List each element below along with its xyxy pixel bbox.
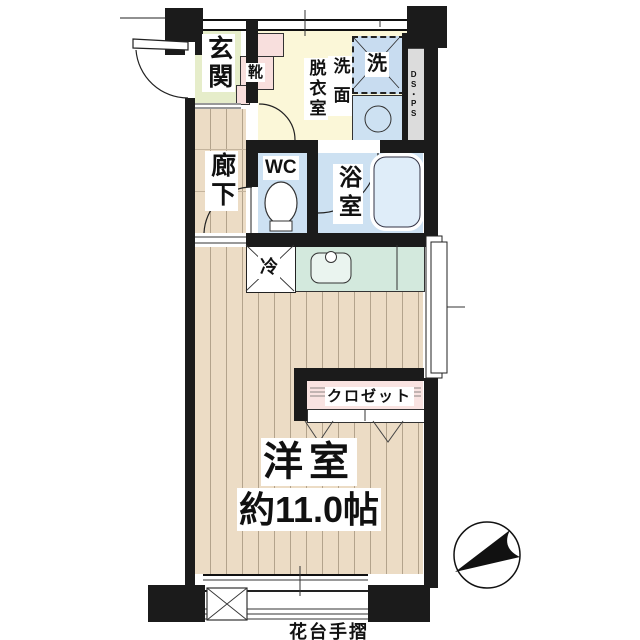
wall-entrance-divider	[246, 20, 258, 103]
kitchen-counter	[294, 245, 425, 292]
window-right	[426, 236, 447, 378]
window-top	[203, 19, 408, 31]
shoe-cabinet-label: 靴	[246, 63, 265, 82]
wall-wc-bath-divider	[307, 140, 318, 247]
wall-corner-bottom-left	[148, 585, 205, 622]
washroom-label-left: 脱衣室	[304, 58, 328, 120]
corridor-label: 廊下	[205, 151, 238, 211]
window-bottom	[203, 574, 368, 592]
western-room-size: 約11.0帖	[237, 488, 381, 531]
wall-corner-bottom-right	[368, 585, 430, 622]
western-room-label: 洋室	[261, 438, 357, 486]
entrance-door-arc	[136, 50, 188, 98]
western-room-labels: 洋室 約11.0帖	[195, 438, 423, 531]
wall-pipe-space-left	[402, 33, 408, 140]
shoe-cabinet-upper	[254, 33, 284, 57]
wc-door-opening	[246, 187, 258, 233]
balcony-label: 花台手摺	[287, 621, 371, 640]
entrance-door-opening	[185, 42, 195, 98]
wall-closet-top	[294, 368, 424, 381]
compass	[454, 522, 520, 588]
wall-corner-top-left	[165, 8, 203, 55]
wall-corner-top-right	[407, 6, 447, 48]
washroom-label-right: 洗面	[328, 56, 352, 116]
wall-right-lower	[424, 378, 438, 588]
wash-basin-counter	[352, 95, 409, 142]
floor-plan: 玄関 靴 洗面 脱衣室 洗 DS・PS 廊下 WC 浴室 冷 クロゼット 洋室 …	[0, 0, 640, 640]
corridor-threshold	[195, 233, 246, 247]
entrance-label: 玄関	[202, 34, 235, 92]
washing-machine-label: 洗	[365, 52, 389, 77]
closet-label: クロゼット	[325, 387, 414, 406]
closet-doors	[307, 409, 425, 423]
wall-closet-left	[294, 368, 307, 421]
refrigerator-label: 冷	[258, 256, 280, 279]
wall-bath-south	[246, 233, 438, 247]
bathroom-label: 浴室	[333, 164, 363, 224]
entrance-step	[195, 103, 241, 109]
bath-door-opening	[318, 140, 380, 153]
pipe-space-label: DS・PS	[409, 70, 418, 119]
balcony-railing	[205, 591, 368, 619]
north-arrow	[455, 530, 520, 572]
balcony-equipment-box	[207, 588, 247, 620]
wall-left	[185, 27, 195, 588]
wc-label: WC	[263, 156, 299, 180]
